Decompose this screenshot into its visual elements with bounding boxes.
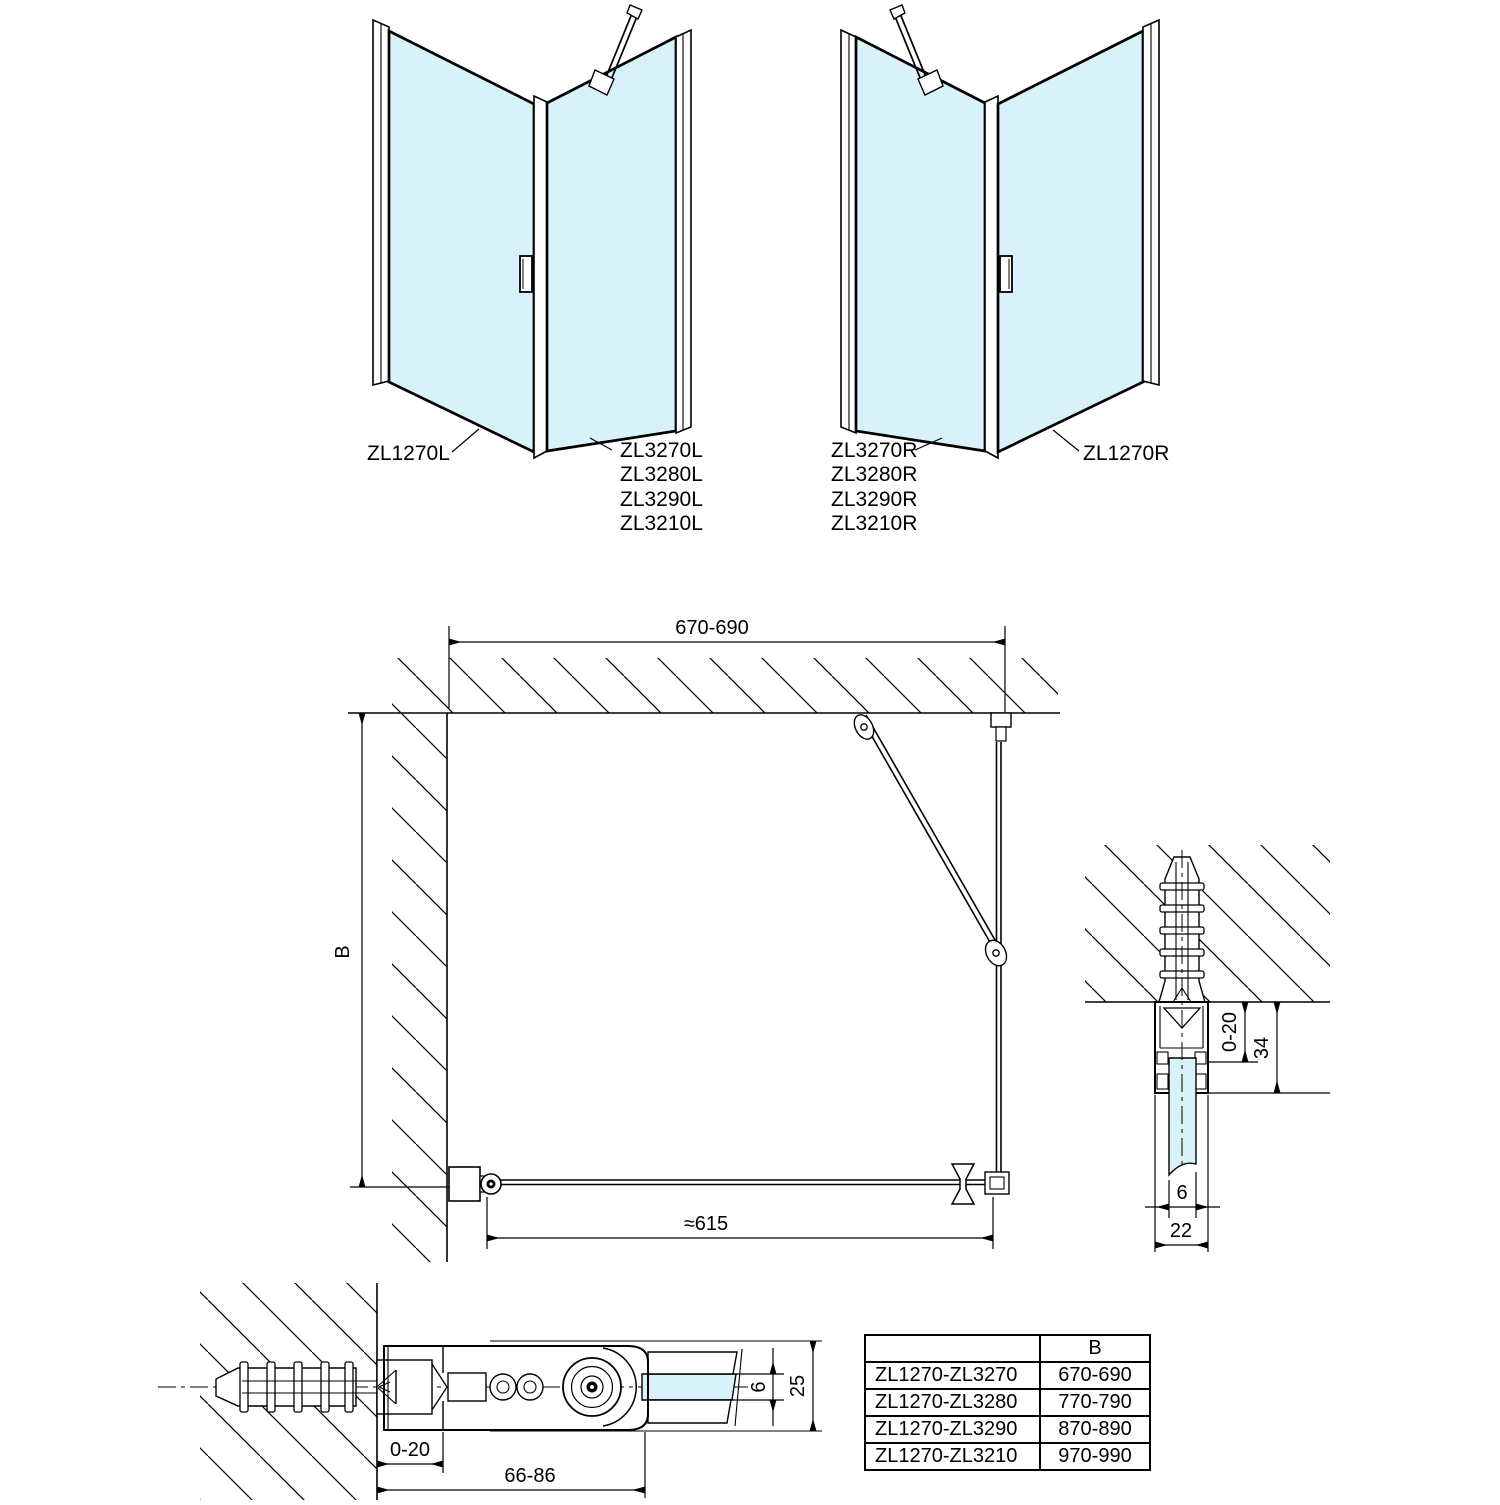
panel-model-label: ZL3280R — [831, 463, 917, 486]
b-cell: 870-890 — [1040, 1416, 1150, 1443]
dim-text-door-width: ≈615 — [684, 1213, 728, 1235]
dim-text-adjust: 0-20 — [1219, 1012, 1241, 1052]
panel-model-label: ZL3270R — [831, 439, 917, 462]
technical-drawing-page: { "colors": { "glass": "#d9f2f9", "line"… — [0, 0, 1500, 1500]
b-cell: 970-990 — [1040, 1443, 1150, 1470]
table-row: ZL1270-ZL3280 770-790 — [865, 1389, 1150, 1416]
dim-text-span: 66-86 — [504, 1465, 555, 1487]
dim-text-glass: 6 — [748, 1381, 770, 1392]
dim-text-adjust: 0-20 — [390, 1439, 430, 1461]
dim-text-glass: 6 — [1176, 1182, 1187, 1204]
wall-hatching — [1085, 845, 1330, 1002]
side-glass — [547, 37, 676, 451]
wall-bracket — [991, 713, 1011, 727]
panel-model-label: ZL3210L — [620, 512, 703, 535]
panel-model-label: ZL3290R — [831, 488, 917, 511]
model-cell: ZL1270-ZL3280 — [865, 1389, 1040, 1416]
model-cell: ZL1270-ZL3210 — [865, 1443, 1040, 1470]
drawing-canvas: ZL1270L ZL3270L ZL3280L ZL3290L ZL3210L — [0, 0, 1500, 1500]
glass-clamp-bottom — [648, 1400, 731, 1423]
dimension-adjust: 0-20 — [377, 1432, 443, 1473]
panel-model-label: ZL3210R — [831, 512, 917, 535]
table-header-model — [865, 1335, 1040, 1362]
table-row: ZL1270-ZL3290 870-890 — [865, 1416, 1150, 1443]
panel-model-label: ZL3290L — [620, 488, 703, 511]
b-cell: 770-790 — [1040, 1389, 1150, 1416]
dim-text-depth-b: B — [332, 945, 354, 958]
hinge-wall-plate — [449, 1167, 480, 1201]
dimension-door-width: ≈615 — [487, 1197, 993, 1249]
glass-section — [642, 1374, 736, 1400]
wall-profile-detail: 0-20 34 6 22 — [1085, 845, 1330, 1252]
dim-text-profile-width: 22 — [1170, 1220, 1192, 1242]
glass-clamp-top — [648, 1352, 737, 1374]
leader-line — [1053, 430, 1079, 451]
door-model-label: ZL1270L — [367, 442, 450, 465]
dimension-glass-thickness: 6 — [1145, 1172, 1220, 1218]
wall-anchor — [216, 1360, 447, 1414]
iso-left-view: ZL1270L ZL3270L ZL3280L ZL3290L ZL3210L — [367, 5, 703, 535]
size-table: B ZL1270-ZL3270 670-690 ZL1270-ZL3280 77… — [864, 1334, 1151, 1471]
b-cell: 670-690 — [1040, 1362, 1150, 1389]
panel-model-label: ZL3280L — [620, 463, 703, 486]
dim-text-top-width: 670-690 — [675, 617, 748, 639]
table-row: ZL1270-ZL3270 670-690 — [865, 1362, 1150, 1389]
door-handle — [520, 256, 532, 292]
door-handle — [1000, 256, 1012, 292]
hinge-detail: 0-20 66-86 6 25 — [158, 1283, 822, 1500]
dimension-height: 25 — [787, 1341, 813, 1431]
dim-text-profile-depth: 34 — [1251, 1037, 1273, 1059]
plan-view: 670-690 B — [332, 617, 1060, 1262]
plan-support-bar — [850, 712, 1010, 970]
corner-bracket — [985, 1172, 1009, 1194]
iso-right-view: ZL3270R ZL3280R ZL3290R ZL3210R ZL1270R — [831, 5, 1169, 535]
corner-post — [534, 96, 547, 458]
door-glass — [998, 31, 1143, 452]
model-cell: ZL1270-ZL3290 — [865, 1416, 1040, 1443]
table-row: ZL1270-ZL3210 970-990 — [865, 1443, 1150, 1470]
plan-door — [449, 1164, 1009, 1204]
door-glass — [389, 31, 534, 452]
dim-text-height: 25 — [787, 1375, 809, 1397]
side-glass — [856, 37, 985, 451]
model-cell: ZL1270-ZL3270 — [865, 1362, 1040, 1389]
door-model-label: ZL1270R — [1083, 442, 1169, 465]
panel-model-label: ZL3270L — [620, 439, 703, 462]
table-header-row: B — [865, 1335, 1150, 1362]
corner-post — [985, 96, 998, 458]
leader-line — [452, 429, 479, 452]
table-header-b: B — [1040, 1335, 1150, 1362]
